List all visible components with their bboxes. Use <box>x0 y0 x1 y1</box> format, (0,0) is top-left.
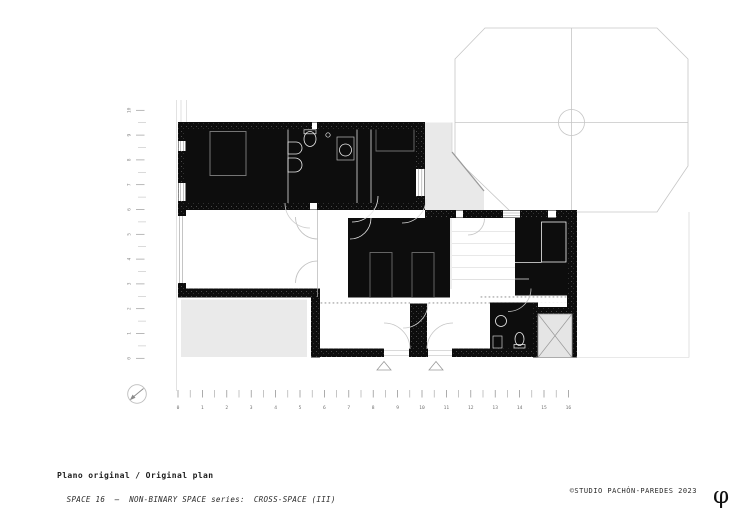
svg-text:0: 0 <box>177 405 180 411</box>
roof-outline <box>455 28 688 212</box>
svg-text:2: 2 <box>127 307 133 310</box>
svg-text:10: 10 <box>419 405 425 411</box>
svg-text:11: 11 <box>444 405 450 411</box>
svg-text:8: 8 <box>127 158 133 161</box>
svg-text:1: 1 <box>201 405 204 411</box>
svg-text:4: 4 <box>127 257 133 260</box>
series-subtitle: SPACE 16 — NON-BINARY SPACE series:CROSS… <box>57 486 336 504</box>
svg-text:9: 9 <box>396 405 399 411</box>
copyright-text: ©STUDIO PACHÓN-PAREDES 2023 <box>570 487 697 495</box>
svg-text:15: 15 <box>541 405 547 411</box>
svg-text:9: 9 <box>127 133 133 136</box>
svg-text:6: 6 <box>127 208 133 211</box>
drawing-sheet: 012345678910111213141516 109876543210 Pl… <box>0 0 750 524</box>
series-value: CROSS-SPACE (III) <box>254 495 336 504</box>
studio-logo-icon: φ <box>713 483 729 509</box>
page-title: Plano original / Original plan <box>57 471 214 480</box>
svg-text:16: 16 <box>566 405 572 411</box>
svg-text:1: 1 <box>127 332 133 335</box>
wardrobe-shelves <box>452 232 515 280</box>
svg-text:13: 13 <box>492 405 498 411</box>
vertical-ruler: 109876543210 <box>127 107 146 359</box>
svg-text:3: 3 <box>250 405 253 411</box>
svg-text:10: 10 <box>127 107 133 113</box>
horizontal-scale-bar: 012345678910111213141516 <box>177 390 572 411</box>
svg-text:5: 5 <box>299 405 302 411</box>
terrace <box>181 300 307 358</box>
svg-text:14: 14 <box>517 405 523 411</box>
svg-text:6: 6 <box>323 405 326 411</box>
series-label: SPACE 16 — NON-BINARY SPACE series: <box>67 495 245 504</box>
entrance-arrows <box>377 362 443 371</box>
shaft <box>538 314 572 358</box>
svg-text:7: 7 <box>347 405 350 411</box>
svg-text:7: 7 <box>127 183 133 186</box>
svg-text:12: 12 <box>468 405 474 411</box>
svg-text:3: 3 <box>127 282 133 285</box>
roof-overlay <box>425 123 484 211</box>
title-block: Plano original / Original plan <box>57 471 214 480</box>
svg-text:2: 2 <box>225 405 228 411</box>
svg-text:0: 0 <box>127 357 133 360</box>
north-arrow-icon <box>128 385 147 404</box>
svg-text:4: 4 <box>274 405 277 411</box>
svg-text:5: 5 <box>127 233 133 236</box>
floor-plan-drawing: 012345678910111213141516 109876543210 <box>0 0 750 524</box>
svg-text:8: 8 <box>372 405 375 411</box>
